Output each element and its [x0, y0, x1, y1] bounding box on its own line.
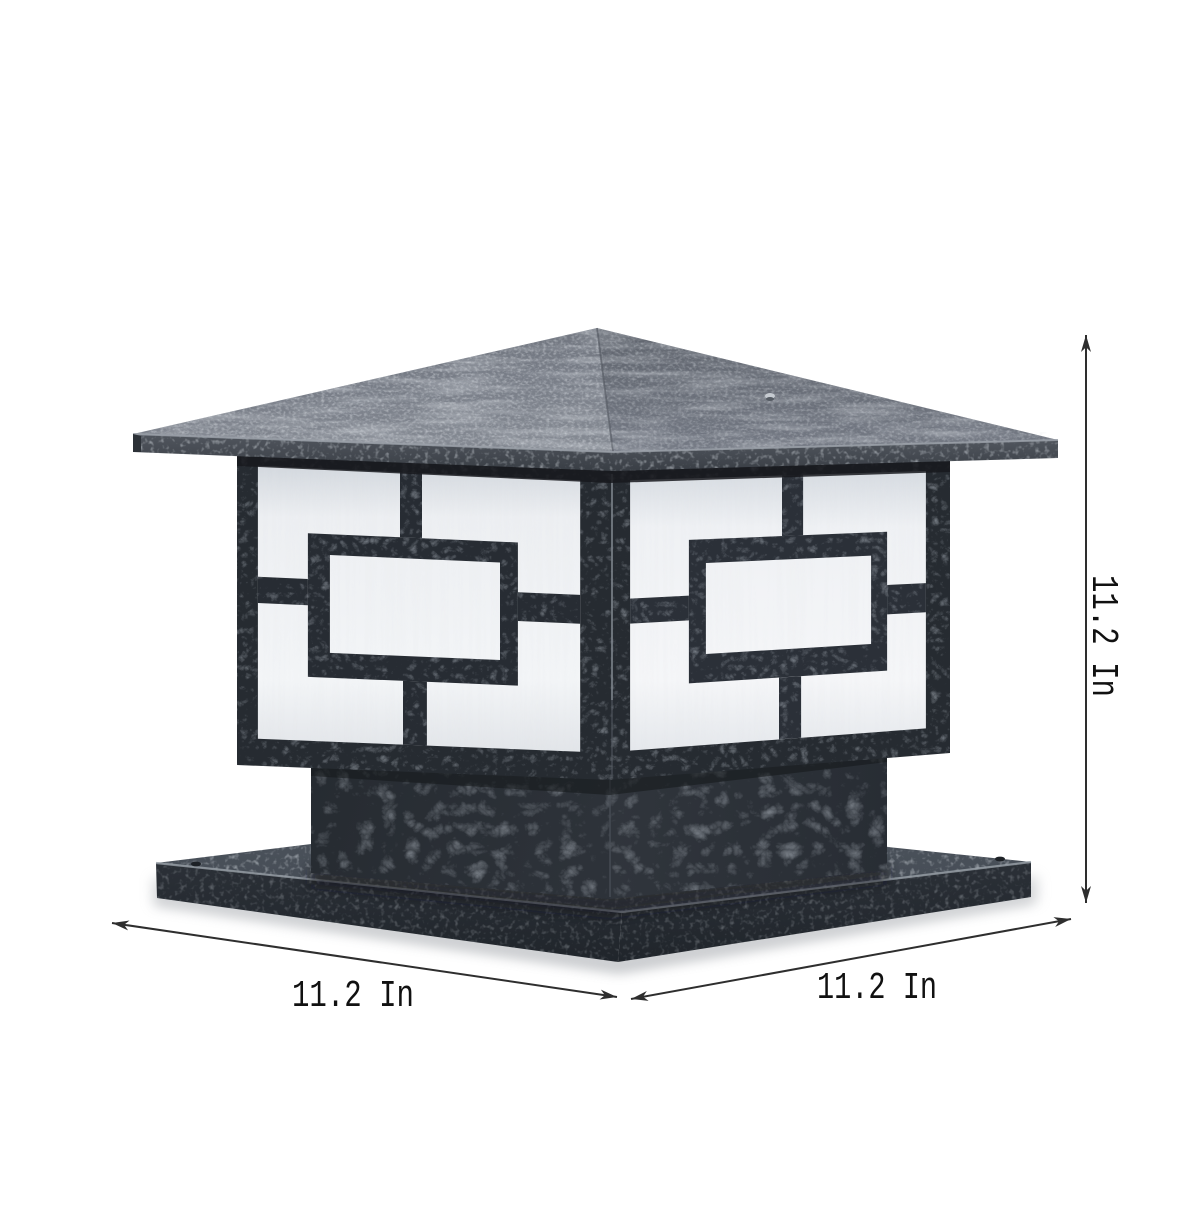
svg-text:11.2 In: 11.2 In [817, 967, 937, 1010]
svg-text:11.2 In: 11.2 In [1081, 575, 1124, 697]
svg-text:11.2 In: 11.2 In [292, 975, 414, 1018]
